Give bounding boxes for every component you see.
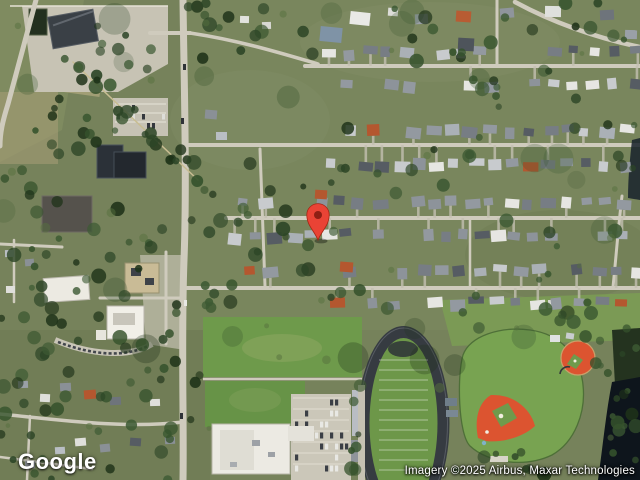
- map-attribution: Imagery ©2025 Airbus, Maxar Technologies: [405, 465, 635, 477]
- map-canvas[interactable]: Google Imagery ©2025 Airbus, Maxar Techn…: [0, 0, 640, 480]
- main-road: [183, 0, 186, 480]
- sport-court: [114, 152, 146, 178]
- satellite-imagery: [0, 0, 640, 480]
- google-logo[interactable]: Google: [18, 449, 97, 475]
